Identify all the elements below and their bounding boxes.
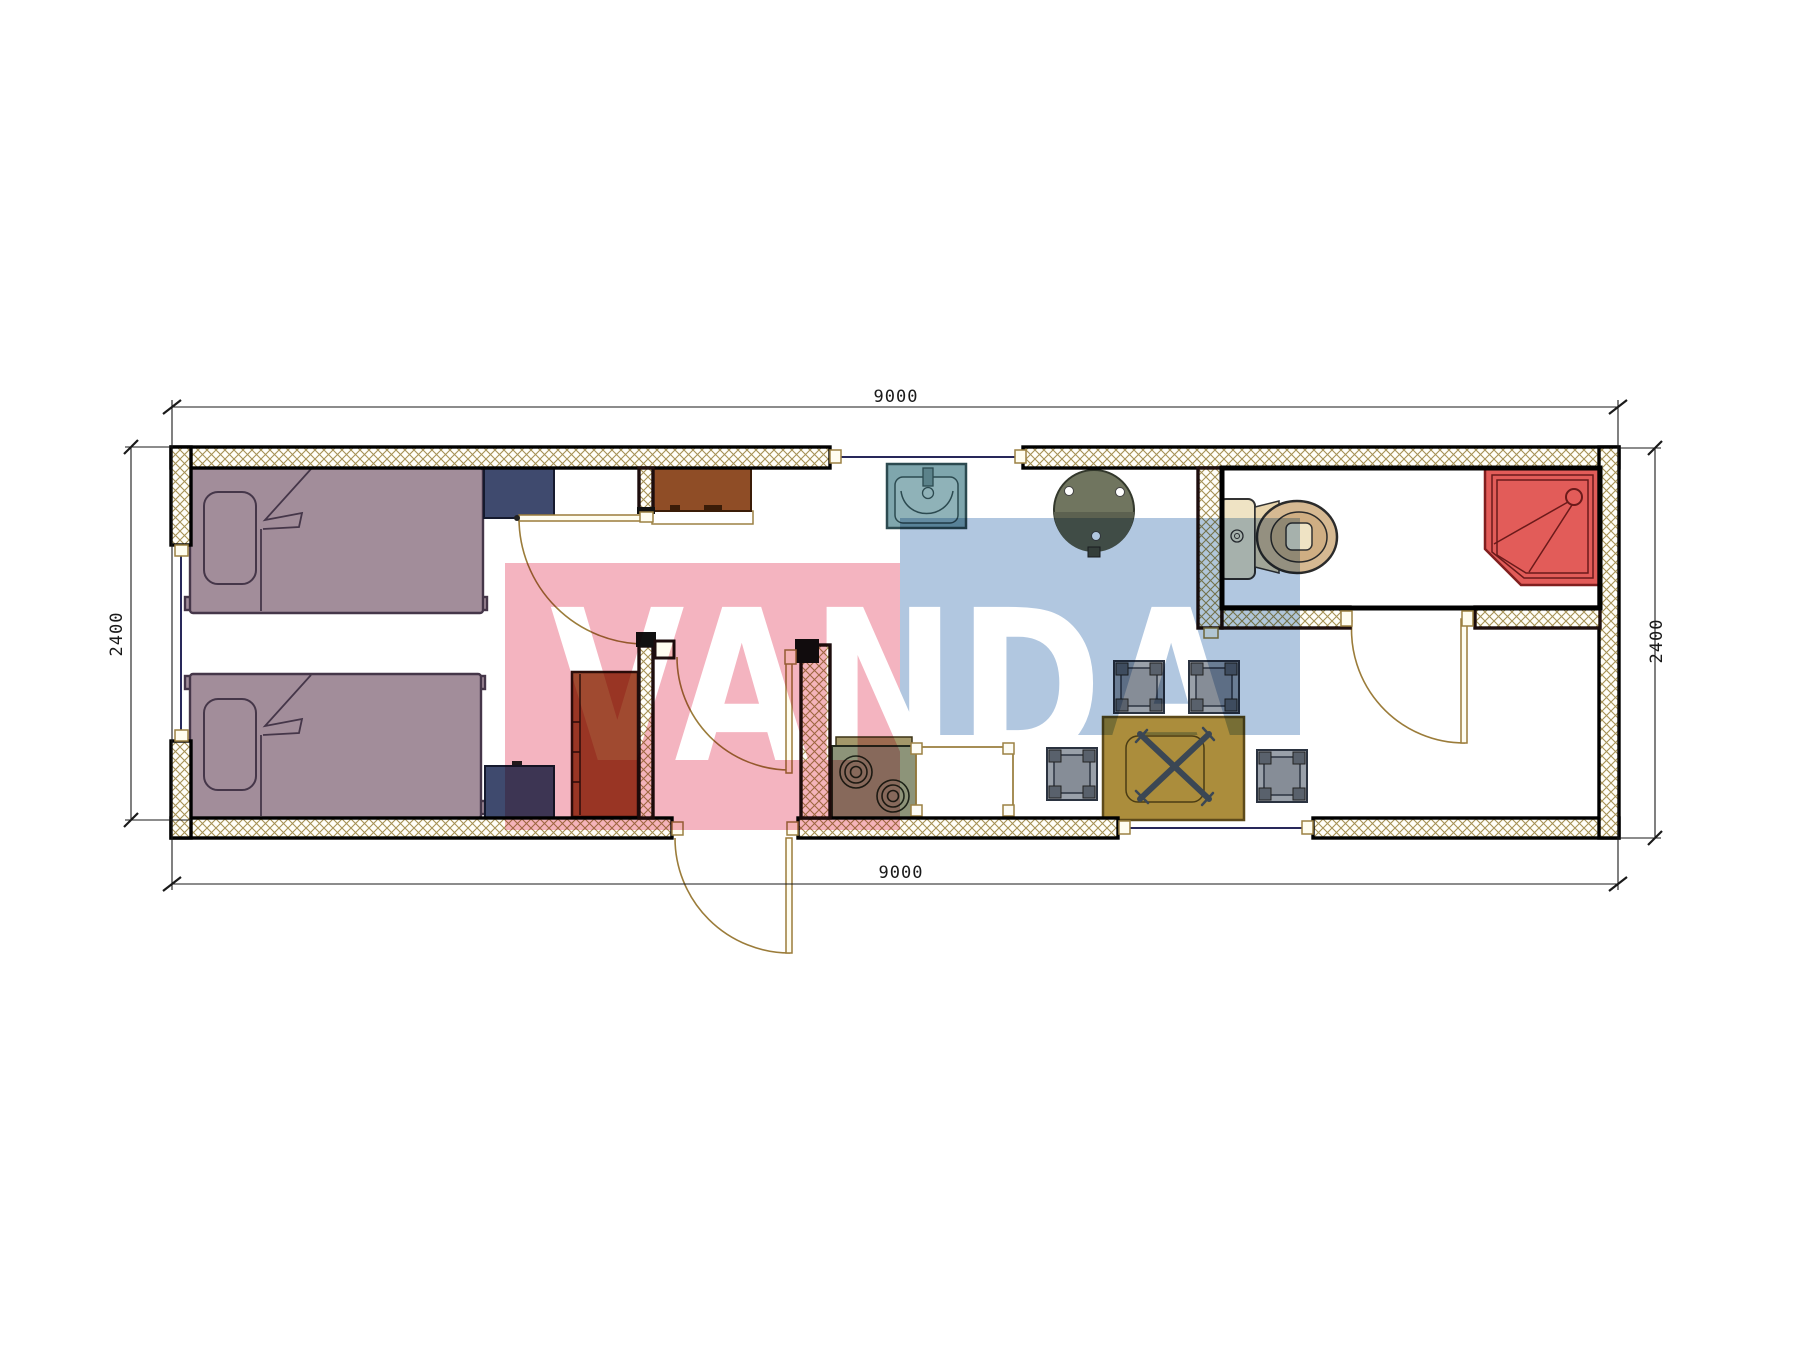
window-top — [830, 450, 1026, 463]
pillow-icon — [204, 492, 256, 584]
faucet-icon — [923, 468, 933, 486]
entry-door — [675, 838, 792, 953]
hall-cabinet — [652, 468, 753, 524]
shower — [1485, 468, 1600, 585]
exterior-wall-bottom-right — [1313, 818, 1619, 838]
watermark-pink-block — [505, 563, 900, 830]
exterior-wall-top-left — [171, 447, 830, 468]
dim-left-label: 2400 — [107, 612, 127, 657]
nightstand-top — [484, 468, 554, 518]
stool-left — [1047, 748, 1097, 800]
single-bed-bottom — [185, 674, 485, 818]
window-bottom — [1119, 821, 1313, 834]
dim-top-label: 9000 — [874, 387, 919, 407]
window-left — [175, 545, 188, 741]
exterior-wall-left-upper — [171, 447, 191, 545]
pillow-icon — [204, 699, 256, 790]
dim-bottom-label: 9000 — [879, 863, 924, 883]
dimension-bottom: 9000 — [163, 863, 1627, 891]
dim-right-label: 2400 — [1647, 619, 1667, 664]
stool-right — [1257, 750, 1307, 802]
dimension-right: 2400 — [1619, 441, 1667, 845]
kitchen-counter — [911, 743, 1014, 818]
floor-plan-page: VANDA — [0, 0, 1800, 1350]
floorplan-canvas: VANDA — [0, 0, 1800, 1350]
watermark-blue-block — [900, 518, 1300, 735]
exterior-wall-top-right — [1023, 447, 1619, 468]
single-bed-top — [185, 468, 487, 613]
exterior-wall-left-lower — [171, 741, 191, 838]
